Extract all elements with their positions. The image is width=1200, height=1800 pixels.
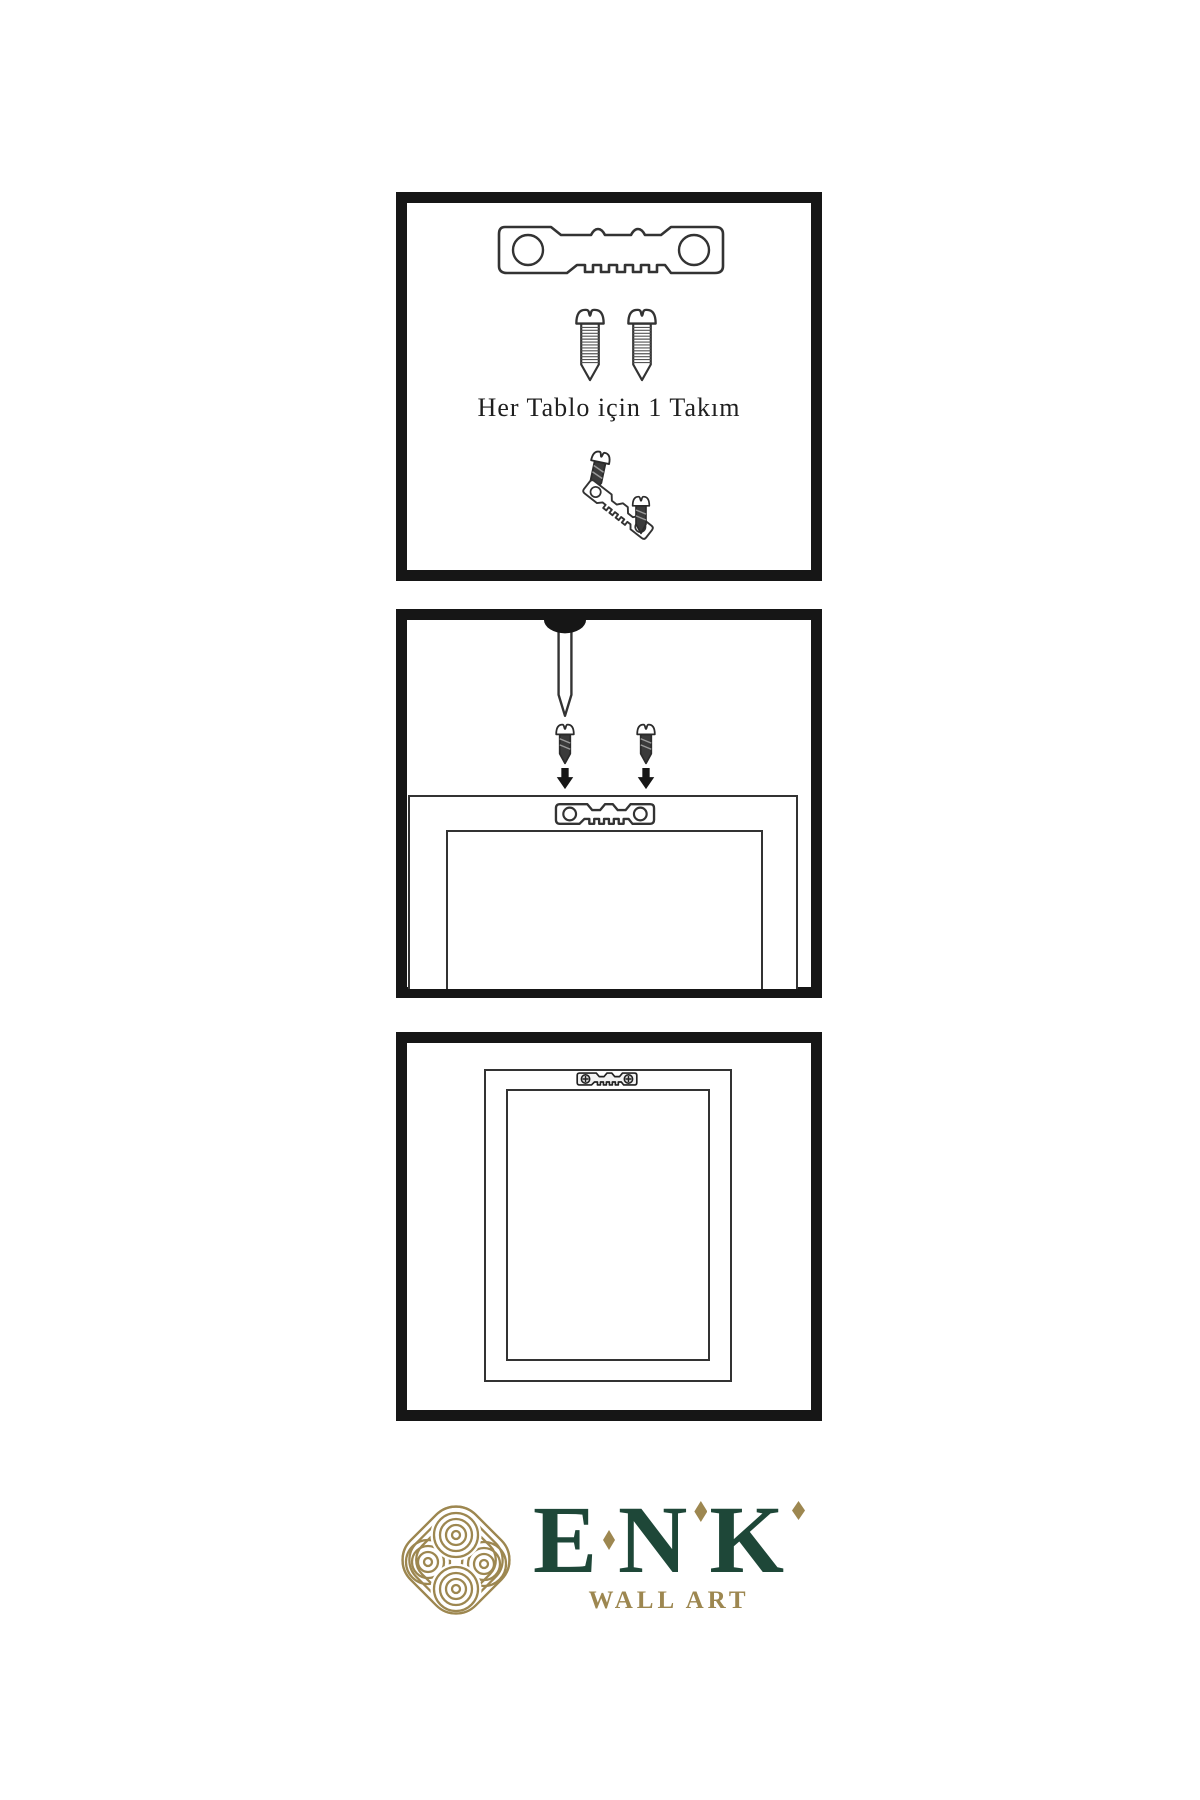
panel-mounting-step [396,609,822,998]
dark-screw-icon [635,722,657,766]
frame-inner-edge [446,830,763,989]
wall-nail-icon [543,617,587,723]
brand-footer: E N K WALL ART [0,1496,1200,1624]
dark-screw-icon [554,722,576,766]
screw-icon [573,305,607,383]
frame-inner-edge [506,1089,710,1361]
instruction-sheet: Her Tablo için 1 Takım [0,0,1200,1800]
brand-letter: K [709,1496,786,1584]
screw-into-hanger-diagram [575,449,679,563]
brand-letter: N [618,1496,689,1584]
kit-caption: Her Tablo için 1 Takım [407,393,811,423]
diamond-icon [694,1501,707,1522]
dark-screw-icon [631,493,651,537]
screw-icon [625,305,659,383]
brand-letter: E [533,1496,599,1584]
brand-name: E N K [533,1496,805,1584]
panel-hardware-kit: Her Tablo için 1 Takım [396,192,822,581]
sawtooth-hanger-with-screws-icon [576,1070,638,1088]
sawtooth-hanger-icon [495,221,727,279]
diamond-icon [792,1501,805,1520]
sawtooth-hanger-icon [554,801,656,827]
panel-hanging-result [396,1032,822,1421]
brand-tagline: WALL ART [588,1587,749,1615]
arrow-down-icon [636,768,656,790]
arrow-down-icon [555,768,575,790]
brand-text-block: E N K WALL ART [533,1496,805,1615]
diamond-icon [603,1530,615,1550]
knot-logo-icon [395,1496,517,1624]
